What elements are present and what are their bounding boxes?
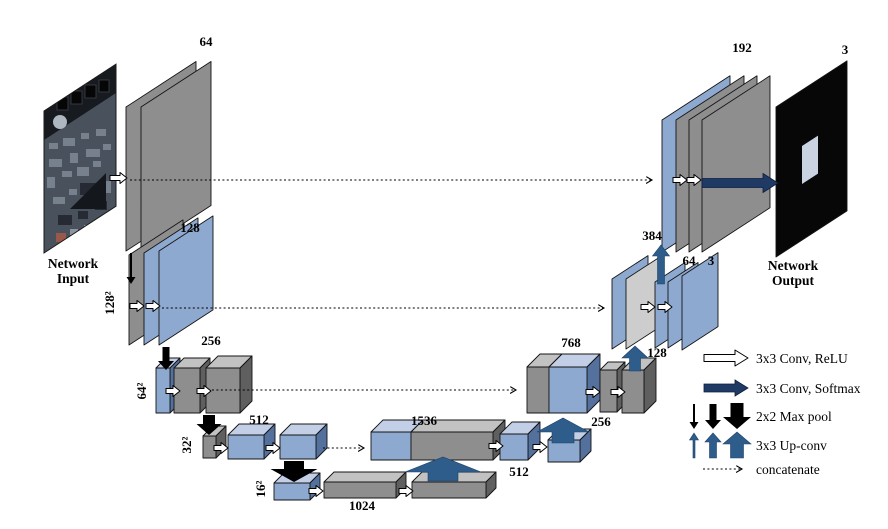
label-dec512: 512	[509, 464, 529, 479]
label-dec3: 3	[708, 253, 715, 268]
legend-conv-relu-label: 3x3 Conv, ReLU	[756, 351, 848, 366]
legend-up-conv-label: 3x3 Up-conv	[756, 438, 827, 453]
label-top192: 192	[732, 40, 752, 55]
legend-conv-softmax-label: 3x3 Conv, Softmax	[756, 381, 861, 396]
feature-box-front-face	[411, 432, 493, 460]
label-resolution-64: 64²	[134, 382, 149, 399]
legend-conv-relu-arrow-icon	[704, 350, 748, 366]
label-dec768: 768	[561, 335, 581, 350]
feature-box-front-face	[549, 367, 587, 413]
label-dec1536: 1536	[411, 413, 438, 428]
label-enc64: 64	[200, 34, 214, 49]
encoder-level-512	[203, 424, 327, 459]
legend-concatenate-label: concatenate	[756, 462, 820, 477]
network-input-caption-line1: Network	[48, 256, 99, 271]
network-input-image	[44, 64, 116, 253]
pcb-light-blob	[53, 115, 67, 129]
label-out3: 3	[842, 42, 849, 57]
legend-conv-softmax-arrow-icon	[704, 380, 748, 396]
label-resolution-128: 128²	[102, 291, 117, 315]
label-resolution-16: 16²	[253, 480, 268, 497]
feature-box-front-face	[371, 432, 411, 460]
feature-box-front-face	[324, 482, 396, 498]
legend: 3x3 Conv, ReLU 3x3 Conv, Softmax 2x2 Max…	[690, 350, 861, 477]
feature-box-front-face	[527, 367, 549, 413]
concat-upconv-box	[549, 354, 600, 413]
network-input-caption-line2: Input	[57, 271, 90, 286]
label-enc256: 256	[201, 333, 221, 348]
feature-box	[280, 424, 327, 459]
label-dec384: 384	[642, 228, 662, 243]
label-bottleneck-1024: 1024	[349, 498, 376, 513]
network-output-image	[776, 61, 847, 257]
feature-box-front-face	[622, 370, 644, 413]
unet-architecture-diagram: 64 128 256 512 1024 1536 512 256 768 128…	[0, 0, 888, 529]
feature-box-front-face	[412, 482, 486, 498]
legend-up-conv-arrows-icon	[690, 432, 752, 458]
network-output-caption-line1: Network	[768, 258, 819, 273]
feature-box	[600, 362, 625, 412]
feature-box-front-face	[228, 435, 264, 459]
feature-box	[206, 356, 252, 413]
unet-architecture-figure: 64 128 256 512 1024 1536 512 256 768 128…	[0, 0, 888, 529]
pcb-red-component	[56, 233, 66, 242]
feature-box-front-face	[274, 483, 310, 500]
legend-max-pool-arrows-icon	[690, 403, 752, 429]
label-up256: 256	[591, 414, 611, 429]
network-output-caption-line2: Output	[772, 273, 815, 288]
bottleneck-level-1024	[274, 472, 496, 500]
label-enc512: 512	[249, 412, 269, 427]
feature-box	[324, 472, 406, 498]
feature-box	[228, 424, 275, 459]
feature-box-front-face	[500, 434, 528, 460]
label-resolution-32: 32²	[179, 436, 194, 453]
label-dec64: 64	[683, 253, 697, 268]
legend-max-pool-label: 2x2 Max pool	[756, 409, 832, 424]
feature-box-front-face	[280, 435, 316, 459]
feature-box	[500, 422, 540, 460]
label-enc128: 128	[180, 220, 200, 235]
label-up128: 128	[647, 345, 667, 360]
decoder-level-192	[662, 76, 770, 252]
feature-box-top-face	[324, 472, 406, 482]
